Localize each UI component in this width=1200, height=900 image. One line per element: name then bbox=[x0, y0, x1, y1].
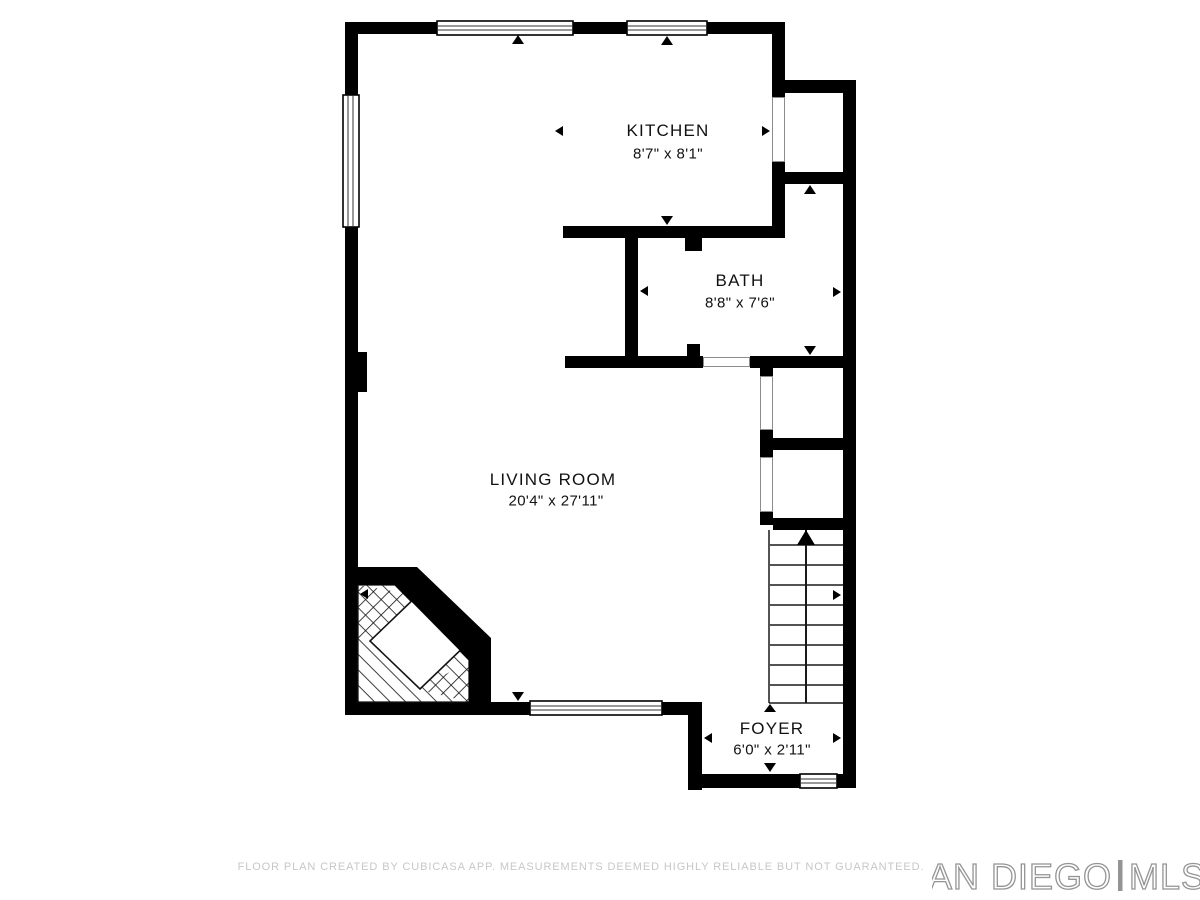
floor-plan-page: KITCHEN 8'7" x 8'1" BATH 8'8" x 7'6" LIV… bbox=[0, 0, 1200, 900]
wall-bath-bottom-left bbox=[565, 356, 703, 368]
arrow-kitchen-left-icon bbox=[555, 126, 563, 136]
floor-plan-drawing bbox=[0, 0, 1200, 900]
bath-dimensions: 8'8" x 7'6" bbox=[705, 295, 775, 312]
wall-left-lower bbox=[345, 227, 358, 715]
window-top-2 bbox=[627, 21, 707, 35]
kitchen-dimensions: 8'7" x 8'1" bbox=[633, 146, 703, 163]
window-bottom bbox=[530, 701, 662, 715]
arrow-livingroom-right-icon bbox=[833, 590, 841, 600]
kitchen-name: KITCHEN bbox=[626, 121, 709, 141]
wall-bath-left bbox=[625, 238, 638, 356]
wall-bath-door-jamb bbox=[687, 344, 700, 356]
arrow-bath-left-icon bbox=[640, 286, 648, 296]
footer-disclaimer: FLOOR PLAN CREATED BY CUBICASA APP. MEAS… bbox=[238, 861, 925, 873]
wall-top-right bbox=[785, 80, 843, 93]
wall-landing-bottom bbox=[785, 172, 843, 184]
logo-text-primary: SAN DIEGO bbox=[932, 856, 1112, 897]
door-bath bbox=[704, 358, 750, 367]
arrow-foyer-up-icon bbox=[764, 704, 776, 712]
wall-left-upper bbox=[345, 22, 358, 95]
foyer-label: FOYER bbox=[740, 719, 805, 739]
fireplace bbox=[345, 567, 491, 702]
bath-name: BATH bbox=[716, 271, 765, 291]
wall-kitchen-bottom-stub bbox=[685, 238, 702, 251]
arrow-kitchen-up-icon bbox=[661, 36, 673, 45]
arrow-bath-right-icon bbox=[833, 287, 841, 297]
door-closet-upper bbox=[761, 377, 773, 430]
wall-left-pilaster bbox=[357, 352, 367, 392]
wall-bottom-left bbox=[345, 702, 530, 715]
arrow-livingroom-up-icon bbox=[512, 35, 524, 44]
wall-closet-divider bbox=[773, 438, 843, 450]
living-room-name: LIVING ROOM bbox=[490, 470, 617, 490]
bath-label: BATH bbox=[716, 271, 765, 291]
arrow-kitchen-down-icon bbox=[661, 216, 673, 225]
window-foyer-entry bbox=[800, 774, 837, 788]
stairs bbox=[769, 530, 843, 703]
logo-text-secondary: MLS bbox=[1129, 856, 1200, 897]
wall-right-outer bbox=[843, 80, 856, 788]
arrow-bath-down-icon bbox=[804, 346, 816, 355]
door-closet-lower bbox=[761, 458, 773, 512]
window-top-1 bbox=[437, 21, 573, 35]
arrow-livingroom-down-icon bbox=[512, 692, 524, 701]
arrow-foyer-down-icon bbox=[764, 763, 776, 772]
san-diego-mls-logo: SAN DIEGO MLS bbox=[932, 852, 1200, 900]
kitchen-label: KITCHEN bbox=[626, 121, 709, 141]
wall-kitchen-bottom bbox=[563, 226, 785, 238]
foyer-dimensions: 6'0" x 2'11" bbox=[733, 742, 811, 759]
stairs-direction-arrow-icon bbox=[797, 530, 815, 545]
arrow-foyer-right-icon bbox=[833, 733, 841, 743]
wall-closet-stub-top bbox=[760, 356, 773, 376]
arrow-bath-up-icon bbox=[804, 185, 816, 194]
window-left bbox=[343, 95, 359, 227]
logo-separator bbox=[1118, 860, 1123, 891]
wall-stairs-top bbox=[773, 518, 843, 530]
wall-kitchen-right-upper bbox=[772, 22, 785, 97]
wall-closet-left-mid bbox=[760, 430, 773, 457]
wall-closet-stub-bottom bbox=[760, 512, 773, 525]
living-room-label: LIVING ROOM bbox=[490, 470, 617, 490]
arrow-foyer-left-icon bbox=[704, 733, 712, 743]
door-kitchen-landing bbox=[773, 98, 785, 162]
arrow-kitchen-right-icon bbox=[762, 126, 770, 136]
living-room-dimensions: 20'4" x 27'11" bbox=[508, 493, 603, 510]
foyer-name: FOYER bbox=[740, 719, 805, 739]
